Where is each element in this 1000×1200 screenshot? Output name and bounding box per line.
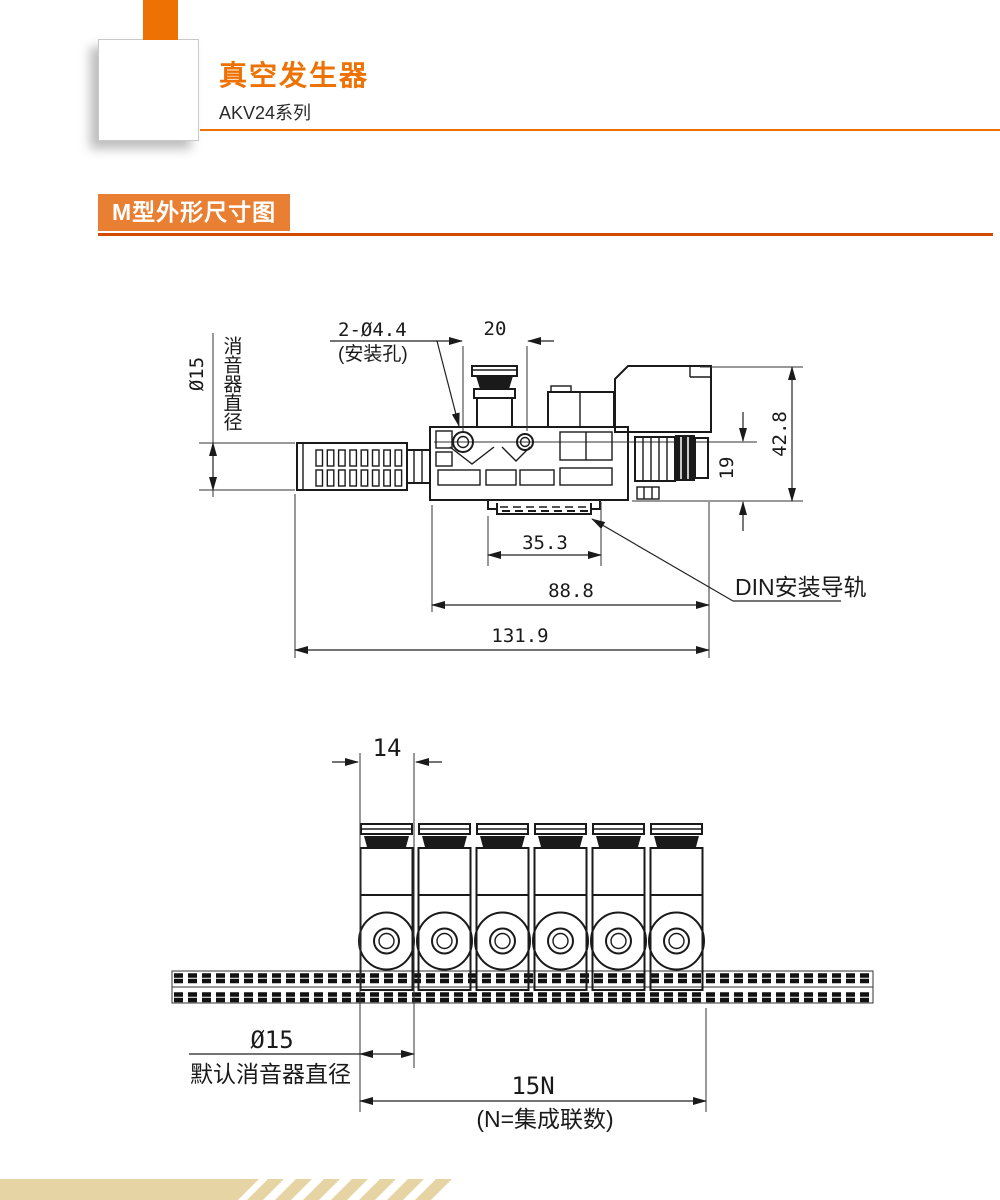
front-muffler-diameter-note: 默认消音器直径 (190, 1061, 351, 1087)
din-rail-bottom (172, 995, 873, 1004)
section-badge: M型外形尺寸图 (98, 194, 290, 231)
din-rail-label: DIN安装导轨 (735, 574, 867, 600)
footer-stripes (0, 1179, 452, 1200)
station-pitch-label: 14 (373, 734, 402, 762)
rail-slot-width-label: 35.3 (522, 532, 568, 554)
front-muffler-diameter-label: Ø15 (250, 1026, 293, 1054)
mounting-holes-note: (安装孔) (338, 343, 408, 365)
module-row (359, 824, 704, 990)
push-in-fitting-top (472, 366, 517, 427)
side-view-dimensions: Ø15 消音器直径 2-Ø4.4 (安装孔) 20 42.8 19 (186, 318, 867, 658)
overall-height-label: 42.8 (769, 411, 791, 457)
series-subtitle: AKV24系列 (219, 99, 311, 125)
hole-spacing-label: 20 (484, 318, 507, 340)
header-divider (200, 129, 1000, 131)
mounting-holes-label: 2-Ø4.4 (338, 319, 407, 341)
header-accent-bar (143, 0, 178, 40)
rail-to-center-label: 19 (716, 457, 738, 480)
product-thumbnail-card (98, 39, 199, 141)
technical-drawings: Ø15 消音器直径 2-Ø4.4 (安装孔) 20 42.8 19 (0, 0, 1000, 1200)
side-view-drawing: Ø15 消音器直径 2-Ø4.4 (安装孔) 20 42.8 19 (186, 318, 867, 658)
total-width-note: (N=集成联数) (476, 1106, 613, 1132)
muffler-diameter-label: Ø15 (186, 357, 208, 391)
body-length-label: 88.8 (548, 580, 594, 602)
muffler-diameter-note: 消音器直径 (221, 336, 243, 431)
muffler (297, 443, 430, 490)
page-title: 真空发生器 (219, 54, 369, 94)
valve-block (548, 366, 711, 432)
front-view-drawing: 14 Ø15 默认消音器直径 15N (N=集成联数) (172, 734, 873, 1132)
overall-length-label: 131.9 (491, 625, 548, 647)
section-divider (98, 233, 993, 236)
total-width-label: 15N (511, 1072, 554, 1100)
